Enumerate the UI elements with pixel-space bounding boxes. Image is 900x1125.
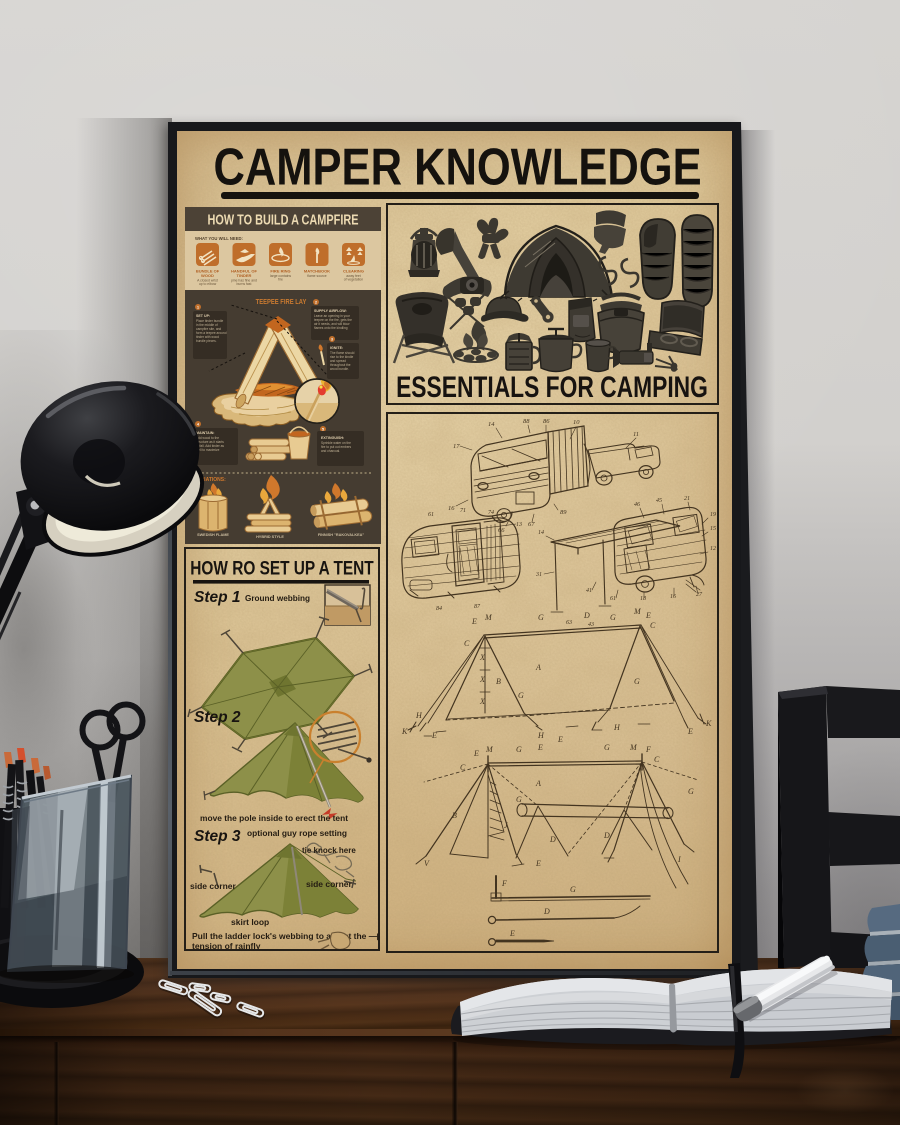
svg-text:J: J: [504, 821, 508, 830]
svg-text:2: 2: [315, 301, 317, 305]
svg-text:K: K: [705, 719, 712, 728]
svg-text:5: 5: [322, 428, 324, 432]
svg-text:FINNISH "RAKOVALKEA": FINNISH "RAKOVALKEA": [318, 533, 365, 537]
svg-text:D: D: [549, 835, 556, 844]
svg-text:46: 46: [634, 501, 640, 508]
svg-text:H: H: [537, 731, 545, 740]
svg-text:SET UP:: SET UP:: [196, 314, 210, 318]
svg-text:D: D: [603, 831, 610, 840]
svg-text:and charcoal.: and charcoal.: [321, 449, 340, 453]
svg-text:E: E: [557, 735, 563, 744]
svg-text:63: 63: [566, 620, 572, 626]
svg-text:WOOD: WOOD: [201, 273, 214, 278]
svg-text:F: F: [645, 745, 651, 754]
svg-text:wood bundle.: wood bundle.: [330, 367, 349, 371]
svg-text:71: 71: [460, 508, 466, 514]
svg-text:Ground webbing: Ground webbing: [245, 594, 310, 603]
svg-text:side corner: side corner: [306, 879, 353, 889]
svg-text:HYBRID STYLE: HYBRID STYLE: [256, 535, 284, 539]
svg-text:G: G: [570, 885, 576, 894]
svg-text:14: 14: [488, 421, 495, 428]
svg-text:3: 3: [331, 338, 333, 342]
svg-text:optional guy rope setting: optional guy rope setting: [247, 828, 347, 838]
svg-text:M: M: [633, 607, 642, 616]
svg-text:67: 67: [528, 521, 535, 528]
svg-text:M: M: [484, 613, 493, 622]
svg-text:1: 1: [197, 306, 199, 310]
svg-text:D: D: [583, 611, 590, 620]
svg-text:87: 87: [474, 604, 481, 610]
svg-text:E: E: [537, 743, 543, 752]
svg-text:B: B: [452, 811, 457, 820]
svg-text:burns fast: burns fast: [237, 282, 252, 286]
svg-text:15: 15: [710, 526, 716, 532]
svg-text:G: G: [518, 691, 524, 700]
svg-text:E: E: [471, 617, 477, 626]
svg-text:74: 74: [488, 509, 494, 516]
svg-text:27: 27: [696, 592, 703, 598]
svg-text:89: 89: [560, 509, 567, 516]
svg-text:88: 88: [523, 418, 530, 425]
svg-text:G: G: [610, 613, 616, 622]
svg-text:K: K: [401, 727, 408, 736]
svg-text:21: 21: [684, 496, 690, 502]
svg-text:TINDER: TINDER: [237, 273, 252, 278]
svg-text:WHAT YOU WILL NEED:: WHAT YOU WILL NEED:: [195, 236, 243, 241]
svg-text:C: C: [654, 755, 660, 764]
svg-text:M: M: [485, 745, 494, 754]
svg-text:86: 86: [543, 418, 550, 425]
svg-text:V: V: [424, 859, 430, 868]
svg-text:F: F: [501, 879, 507, 888]
svg-text:fire: fire: [278, 278, 283, 282]
svg-text:IGNITE:: IGNITE:: [330, 346, 343, 350]
svg-text:TEEPEE FIRE LAY: TEEPEE FIRE LAY: [256, 298, 307, 306]
svg-text:M: M: [629, 743, 638, 752]
svg-text:G: G: [604, 743, 610, 752]
svg-text:10: 10: [573, 419, 580, 426]
svg-text:16: 16: [448, 505, 455, 512]
svg-text:45: 45: [656, 497, 662, 504]
svg-text:G: G: [516, 795, 522, 804]
svg-text:flame source: flame source: [307, 274, 327, 278]
svg-text:E: E: [473, 749, 479, 758]
svg-text:B: B: [496, 677, 501, 686]
svg-text:of vegetation: of vegetation: [344, 278, 364, 282]
svg-text:up to elbow: up to elbow: [199, 282, 217, 286]
svg-text:flames onto the kindling: flames onto the kindling: [314, 326, 348, 330]
svg-text:A: A: [535, 663, 541, 672]
svg-text:ESSENTIALS FOR CAMPING: ESSENTIALS FOR CAMPING: [396, 370, 708, 403]
svg-text:E: E: [431, 731, 437, 740]
svg-text:19: 19: [710, 512, 716, 518]
svg-text:C: C: [650, 621, 656, 630]
svg-text:12: 12: [710, 546, 716, 552]
svg-text:41: 41: [586, 587, 592, 594]
svg-text:G: G: [516, 745, 522, 754]
svg-text:14: 14: [538, 529, 544, 536]
svg-text:84: 84: [436, 605, 442, 612]
svg-text:MATCHBOOK: MATCHBOOK: [304, 269, 330, 274]
svg-text:E: E: [535, 859, 541, 868]
svg-text:H: H: [415, 711, 423, 720]
svg-text:13: 13: [516, 522, 522, 528]
svg-text:G: G: [538, 613, 544, 622]
svg-text:D: D: [543, 907, 550, 916]
svg-text:bundle pieces.: bundle pieces.: [196, 339, 217, 343]
svg-text:E: E: [645, 611, 651, 620]
svg-text:E: E: [509, 929, 515, 938]
svg-text:G: G: [634, 677, 640, 686]
svg-text:EXTINGUISH:: EXTINGUISH:: [321, 436, 344, 440]
svg-text:A: A: [535, 779, 541, 788]
svg-text:61: 61: [610, 596, 616, 602]
svg-text:17: 17: [453, 443, 460, 450]
svg-text:tie knock here: tie knock here: [302, 846, 356, 855]
svg-text:FIRE RING: FIRE RING: [270, 269, 290, 274]
svg-text:66: 66: [498, 527, 505, 534]
svg-text:CLEARING: CLEARING: [343, 269, 364, 274]
svg-text:16: 16: [670, 594, 676, 600]
svg-text:E: E: [687, 727, 693, 736]
svg-text:I: I: [677, 855, 681, 864]
svg-text:G: G: [688, 787, 694, 796]
svg-text:C: C: [464, 639, 470, 648]
svg-text:H: H: [613, 723, 621, 732]
svg-text:61: 61: [428, 512, 434, 518]
svg-text:C: C: [460, 763, 466, 772]
svg-text:18: 18: [640, 596, 646, 602]
svg-text:11: 11: [633, 431, 639, 438]
svg-text:31: 31: [535, 572, 542, 578]
svg-text:HOW TO BUILD A CAMPFIRE: HOW TO BUILD A CAMPFIRE: [207, 211, 358, 228]
svg-text:SUPPLY AIRFLOW:: SUPPLY AIRFLOW:: [314, 309, 347, 313]
svg-text:43: 43: [588, 621, 594, 628]
